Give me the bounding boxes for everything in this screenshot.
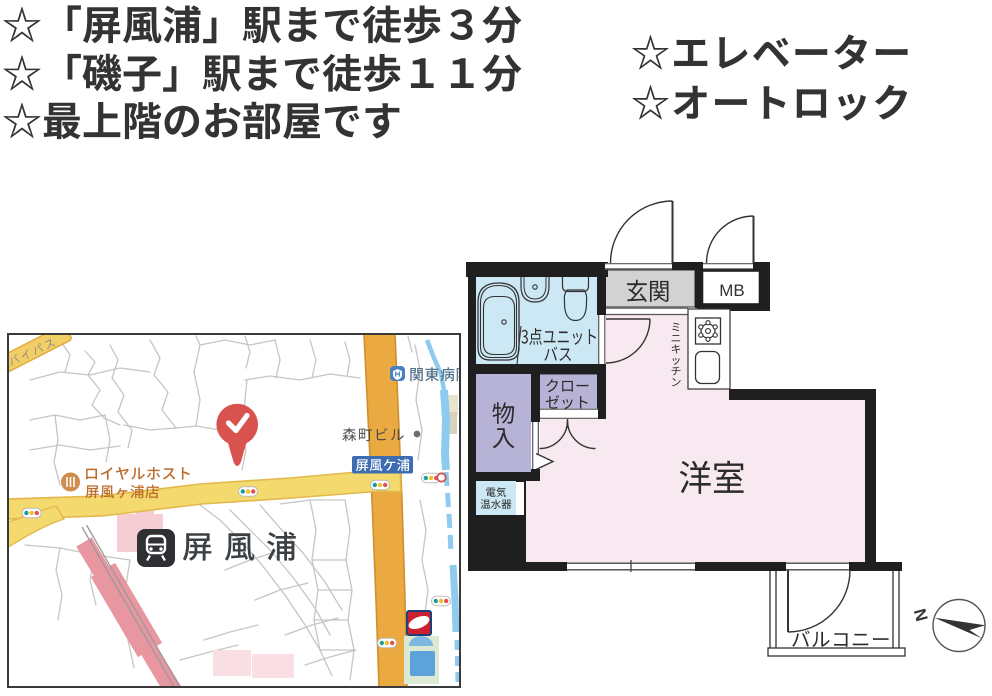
svg-text:MB: MB xyxy=(719,281,745,300)
